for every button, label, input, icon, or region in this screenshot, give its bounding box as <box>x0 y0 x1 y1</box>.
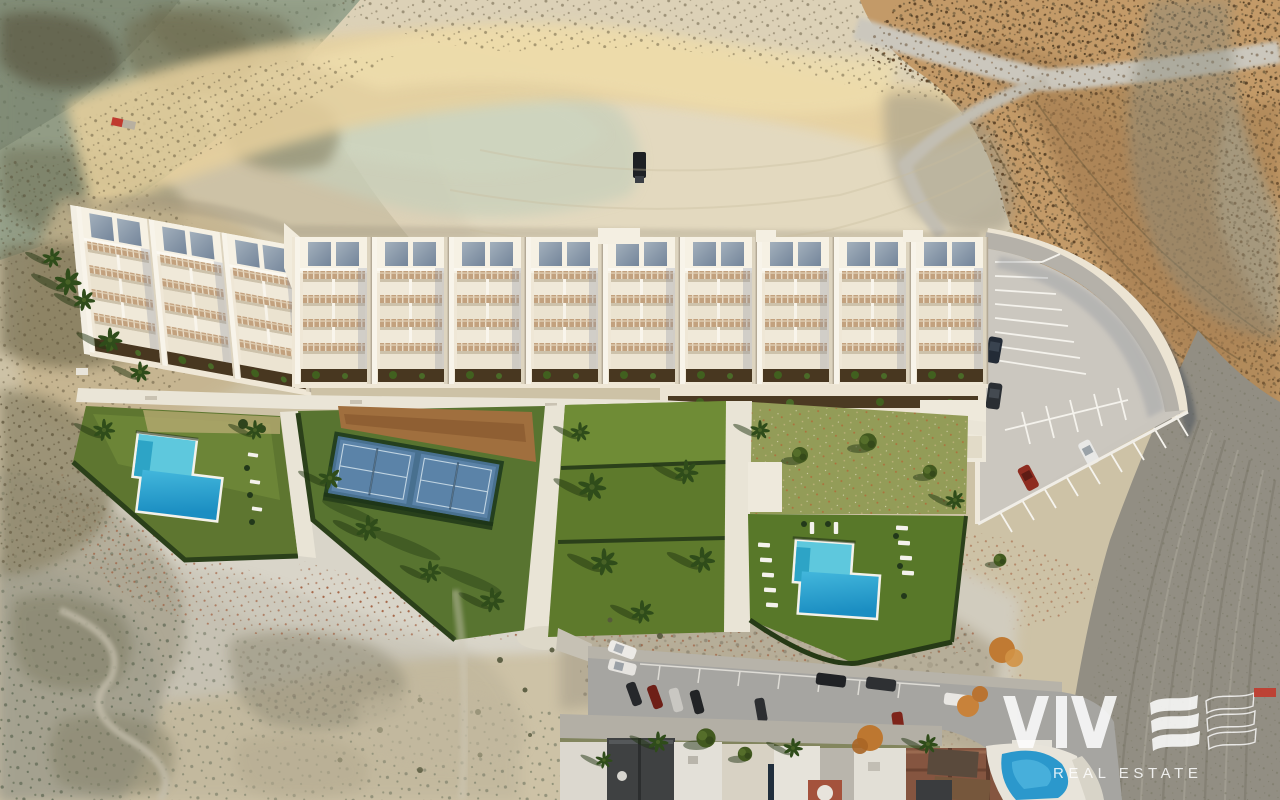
svg-text:REAL ESTATE: REAL ESTATE <box>1053 765 1203 782</box>
